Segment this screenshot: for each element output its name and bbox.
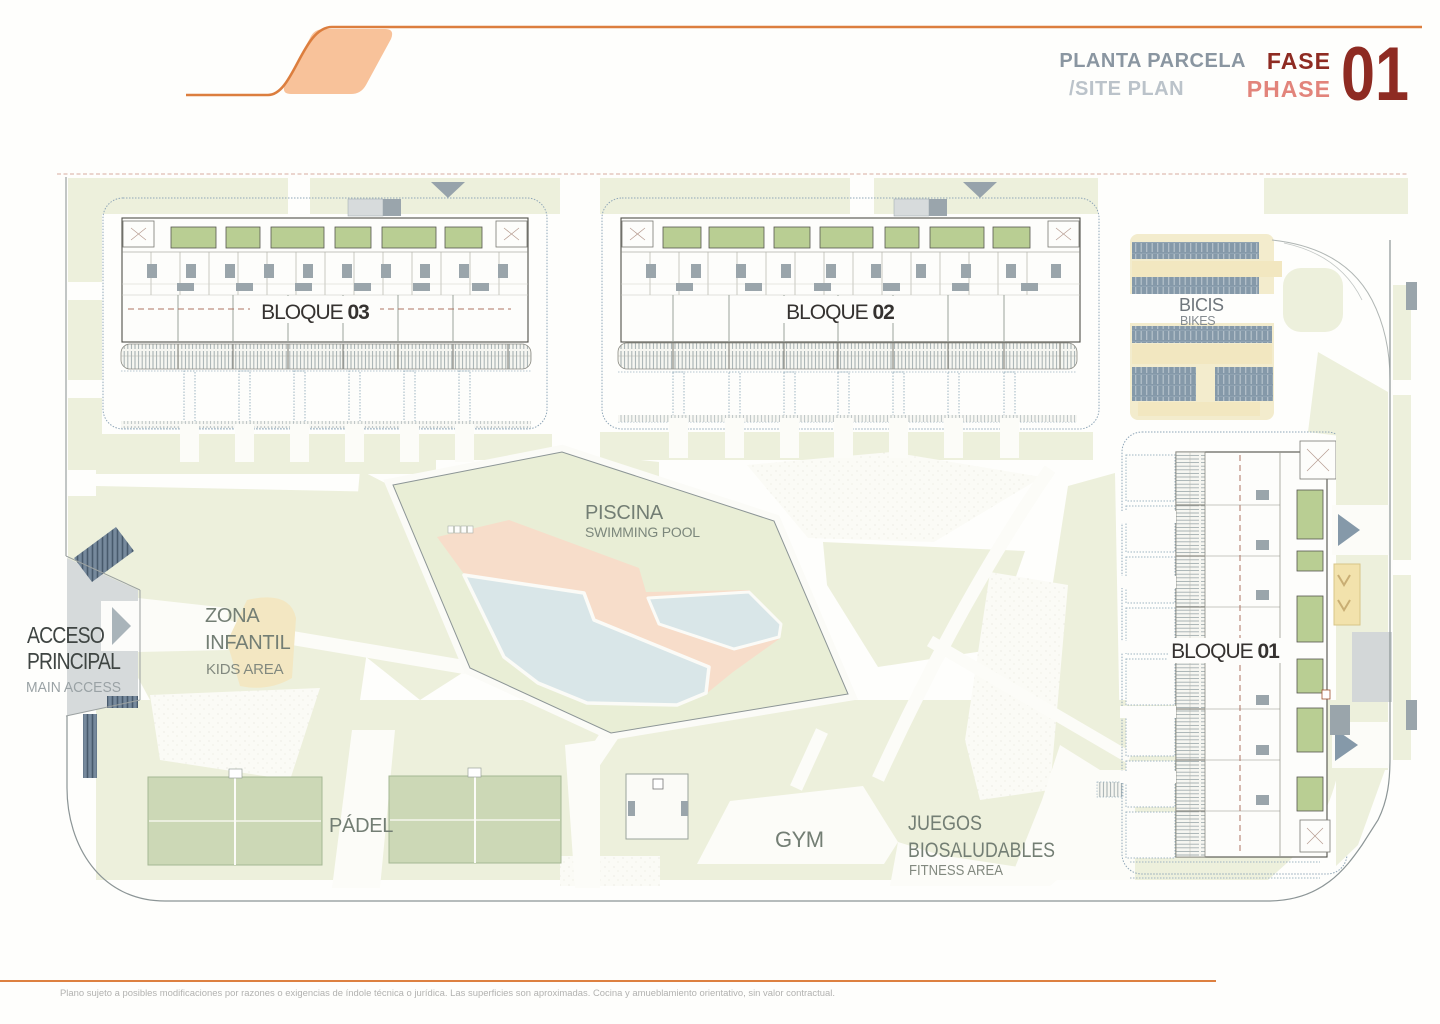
svg-text:MAIN ACCESS: MAIN ACCESS xyxy=(26,680,121,696)
svg-text:PÁDEL: PÁDEL xyxy=(329,814,393,837)
svg-text:PRINCIPAL: PRINCIPAL xyxy=(27,648,121,674)
svg-text:JUEGOS: JUEGOS xyxy=(908,812,982,835)
svg-text:FASE: FASE xyxy=(1267,48,1331,74)
svg-text:01: 01 xyxy=(1341,32,1409,117)
svg-text:BLOQUE 01: BLOQUE 01 xyxy=(1171,640,1280,663)
svg-text:SWIMMING POOL: SWIMMING POOL xyxy=(585,524,700,540)
svg-text:BLOQUE 02: BLOQUE 02 xyxy=(786,301,894,324)
svg-text:BIOSALUDABLES: BIOSALUDABLES xyxy=(908,839,1055,862)
svg-text:PHASE: PHASE xyxy=(1247,76,1331,102)
svg-text:FITNESS AREA: FITNESS AREA xyxy=(909,862,1003,879)
svg-text:Plano sujeto a posibles modifi: Plano sujeto a posibles modificaciones p… xyxy=(60,988,835,998)
svg-text:/SITE PLAN: /SITE PLAN xyxy=(1069,78,1184,100)
svg-text:BICIS: BICIS xyxy=(1179,295,1224,315)
svg-text:BLOQUE 03: BLOQUE 03 xyxy=(261,301,369,324)
svg-text:PLANTA PARCELA: PLANTA PARCELA xyxy=(1059,50,1246,72)
svg-text:ACCESO: ACCESO xyxy=(27,622,104,648)
svg-text:KIDS AREA: KIDS AREA xyxy=(206,661,284,678)
svg-text:GYM: GYM xyxy=(775,827,824,852)
svg-text:ZONA: ZONA xyxy=(205,605,260,627)
svg-text:BIKES: BIKES xyxy=(1180,314,1215,328)
svg-text:INFANTIL: INFANTIL xyxy=(205,632,291,654)
svg-text:PISCINA: PISCINA xyxy=(585,502,664,524)
